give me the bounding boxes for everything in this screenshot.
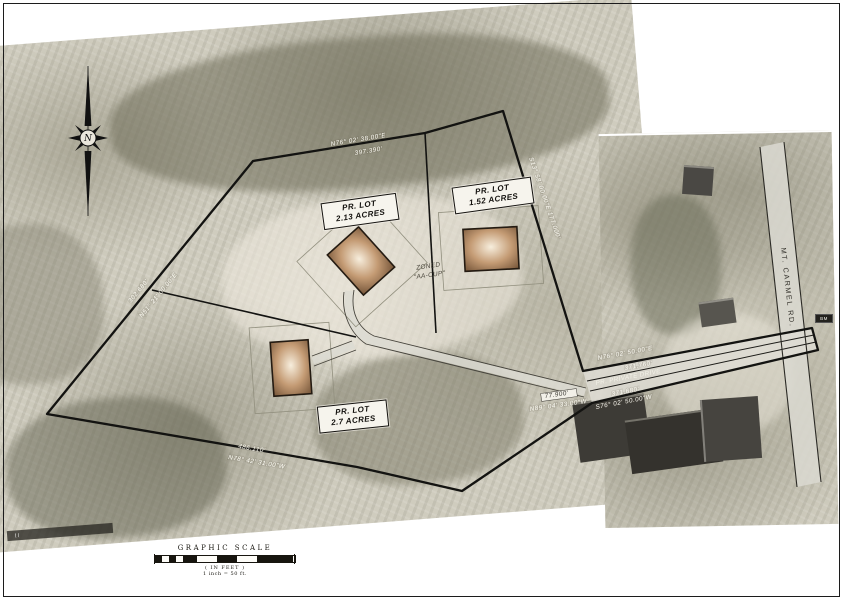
site-plan-sheet: N76° 02' 38.00"E 397.390' 302.680' N51° … <box>0 0 843 600</box>
sheet-border <box>3 3 840 597</box>
